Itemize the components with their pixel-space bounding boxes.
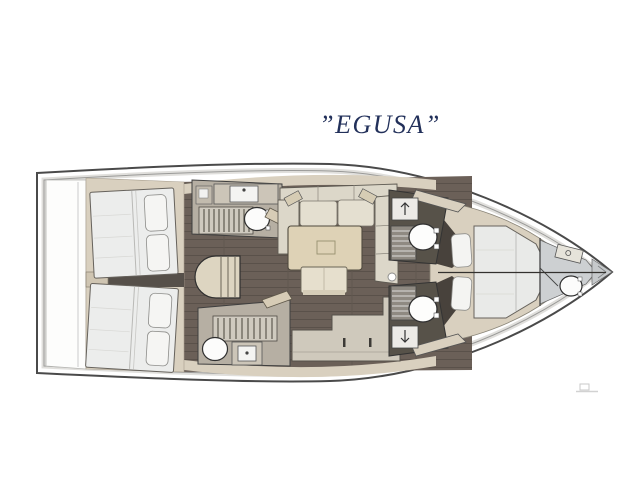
- aft-cabin-port-double-bed: [90, 188, 178, 278]
- faucet: [242, 188, 245, 191]
- pillow: [146, 234, 170, 271]
- shower-grate: [213, 316, 277, 341]
- galley-handle: [343, 338, 346, 347]
- toilet: [409, 296, 437, 322]
- page: ”EGUSA”: [0, 0, 640, 479]
- saloon-table: [288, 226, 362, 270]
- companionway-steps: [195, 256, 240, 298]
- toilet: [203, 338, 228, 361]
- pillow: [148, 293, 172, 328]
- yacht-floor-plan: [0, 0, 640, 479]
- saloon-bench: [301, 267, 347, 295]
- toilet: [409, 224, 437, 250]
- stern-transom-platform: [46, 180, 86, 369]
- pillow: [451, 276, 472, 310]
- pillow: [146, 331, 170, 366]
- aft-cabins: [86, 178, 184, 373]
- faucet: [245, 351, 248, 354]
- watermark-mark: [576, 384, 598, 392]
- aft-cabin-starboard-double-bed: [86, 283, 179, 372]
- mast-post: [388, 273, 396, 281]
- sink-basin: [230, 186, 258, 202]
- galley-handle: [369, 338, 372, 347]
- pillow: [451, 233, 472, 267]
- pillow: [144, 194, 168, 231]
